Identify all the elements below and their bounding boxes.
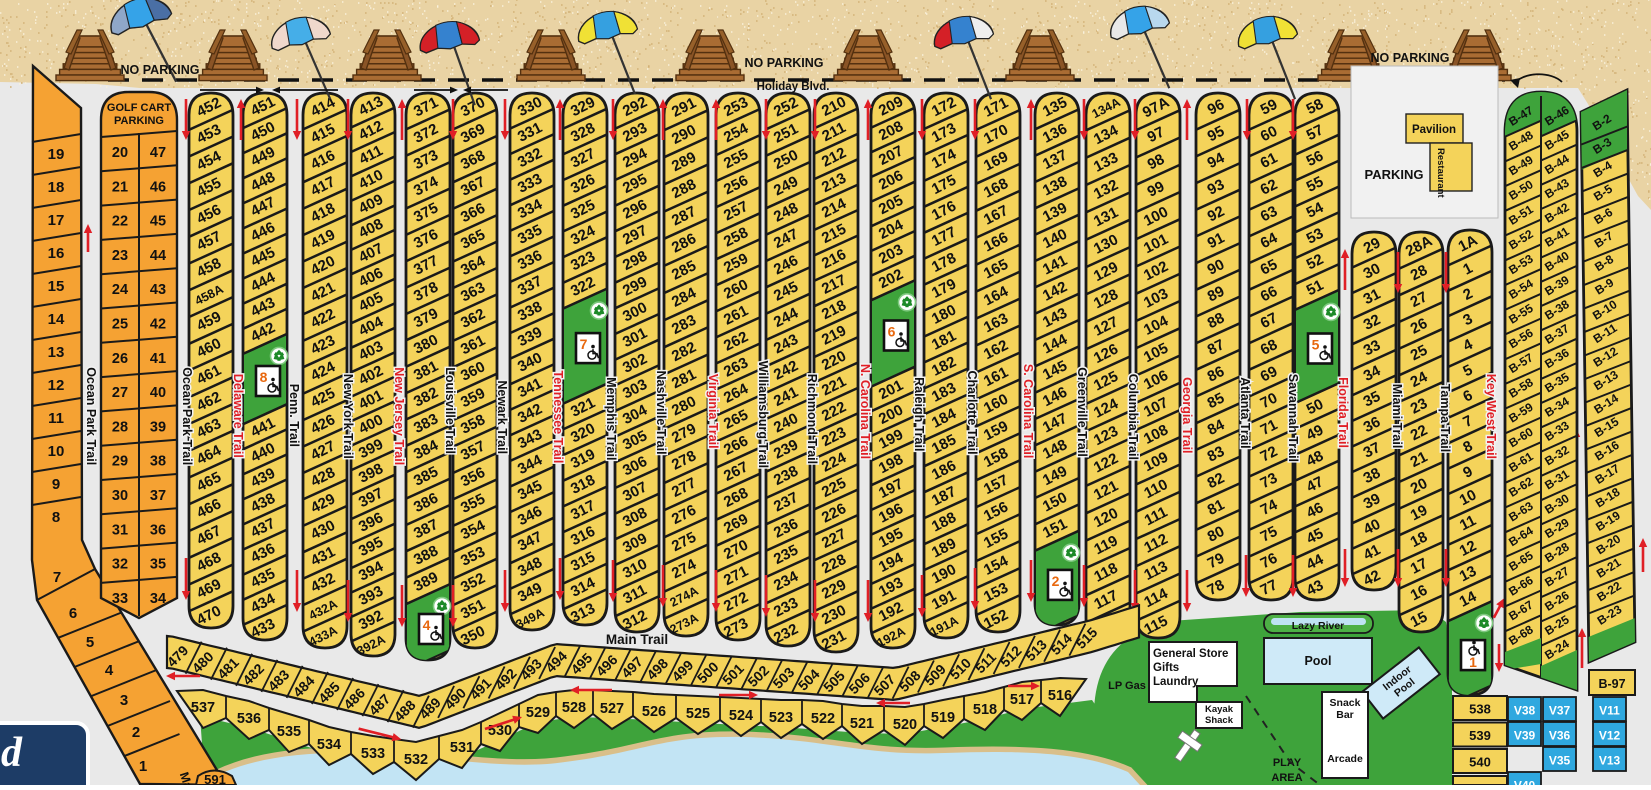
svg-text:12: 12	[48, 377, 65, 394]
svg-text:31: 31	[112, 522, 128, 538]
svg-text:LP Gas: LP Gas	[1108, 680, 1146, 692]
svg-text:Savannah Trail: Savannah Trail	[1286, 374, 1300, 462]
svg-text:37: 37	[150, 488, 166, 504]
svg-text:526: 526	[642, 704, 666, 720]
svg-text:PARKING: PARKING	[114, 115, 164, 127]
svg-text:Bar: Bar	[1336, 709, 1354, 721]
svg-text:S. Carolina Trail: S. Carolina Trail	[1021, 364, 1035, 458]
svg-text:39: 39	[150, 419, 166, 435]
svg-text:15: 15	[48, 278, 65, 295]
svg-text:Holiday Blvd.: Holiday Blvd.	[757, 81, 830, 93]
svg-text:3: 3	[120, 692, 128, 709]
svg-text:Ocean Park Trail: Ocean Park Trail	[180, 367, 194, 465]
svg-text:28: 28	[112, 419, 128, 435]
svg-text:8: 8	[260, 369, 268, 385]
svg-text:520: 520	[893, 717, 917, 733]
svg-text:4: 4	[105, 662, 114, 679]
svg-text:Florida Trail: Florida Trail	[1336, 377, 1350, 448]
svg-text:Laundry: Laundry	[1153, 676, 1199, 688]
svg-text:Georgia Trail: Georgia Trail	[1180, 377, 1194, 453]
svg-text:527: 527	[600, 701, 624, 717]
svg-text:V36: V36	[1549, 729, 1571, 743]
svg-text:532: 532	[404, 752, 428, 768]
svg-text:Memphis Trail: Memphis Trail	[604, 377, 618, 460]
svg-text:2: 2	[1052, 573, 1060, 589]
svg-text:Lazy River: Lazy River	[1292, 620, 1345, 632]
svg-text:NO PARKING: NO PARKING	[745, 56, 824, 70]
svg-text:5: 5	[86, 634, 94, 651]
svg-text:1: 1	[139, 758, 147, 775]
svg-text:523: 523	[769, 710, 793, 726]
svg-text:Nashville Trail: Nashville Trail	[654, 371, 668, 455]
svg-text:44: 44	[150, 248, 166, 264]
svg-text:535: 535	[277, 724, 301, 740]
svg-text:2: 2	[132, 724, 140, 741]
svg-text:533: 533	[361, 746, 385, 762]
svg-text:16: 16	[48, 245, 65, 262]
svg-text:7: 7	[580, 336, 588, 352]
svg-text:7: 7	[53, 569, 61, 586]
svg-text:GOLF CART: GOLF CART	[107, 102, 171, 114]
svg-text:Pavilion: Pavilion	[1412, 124, 1456, 136]
svg-text:V40: V40	[1514, 779, 1536, 786]
svg-text:General Store: General Store	[1153, 648, 1228, 660]
svg-text:27: 27	[112, 385, 128, 401]
svg-text:539: 539	[1469, 728, 1491, 743]
svg-text:B-97: B-97	[1598, 677, 1625, 691]
svg-text:Newark Trail: Newark Trail	[495, 380, 509, 454]
svg-text:Delaware Trail: Delaware Trail	[231, 374, 245, 458]
svg-text:6: 6	[888, 324, 896, 340]
svg-text:13: 13	[48, 344, 65, 361]
svg-text:Snack: Snack	[1330, 697, 1361, 709]
svg-text:Arcade: Arcade	[1327, 753, 1363, 765]
svg-text:New Jersey Trail: New Jersey Trail	[392, 367, 406, 465]
svg-text:540: 540	[1469, 755, 1491, 770]
svg-text:V11: V11	[1599, 704, 1620, 718]
svg-text:5: 5	[1312, 337, 1320, 353]
svg-text:Columbia Trail: Columbia Trail	[1126, 374, 1140, 460]
svg-text:Tennessee Trail: Tennessee Trail	[551, 371, 565, 464]
svg-text:Ocean Park Trail: Ocean Park Trail	[84, 367, 98, 465]
svg-text:21: 21	[112, 179, 128, 195]
svg-text:NO PARKING: NO PARKING	[121, 63, 200, 77]
svg-text:Williamsburg Trail: Williamsburg Trail	[756, 361, 770, 469]
svg-text:Restaurant: Restaurant	[1435, 148, 1446, 198]
svg-text:V38: V38	[1514, 704, 1536, 718]
svg-text:NO PARKING: NO PARKING	[1371, 51, 1450, 65]
svg-text:45: 45	[150, 214, 166, 230]
svg-text:Penn. Trail: Penn. Trail	[287, 384, 301, 447]
svg-text:534: 534	[317, 737, 341, 753]
svg-text:518: 518	[973, 702, 997, 718]
svg-text:V12: V12	[1599, 729, 1621, 743]
svg-text:46: 46	[150, 179, 166, 195]
svg-text:30: 30	[112, 488, 128, 504]
svg-text:35: 35	[150, 557, 166, 573]
svg-text:Greenville Trail: Greenville Trail	[1075, 367, 1089, 457]
svg-text:9: 9	[52, 476, 60, 493]
svg-text:43: 43	[150, 282, 166, 298]
svg-text:14: 14	[48, 311, 65, 328]
svg-text:34: 34	[150, 591, 166, 607]
svg-text:29: 29	[112, 454, 128, 470]
svg-text:V13: V13	[1599, 754, 1621, 768]
svg-text:10: 10	[48, 443, 65, 460]
svg-text:Richmond Trail: Richmond Trail	[805, 374, 819, 464]
svg-text:V39: V39	[1514, 729, 1536, 743]
svg-text:531: 531	[450, 740, 474, 756]
svg-text:8: 8	[52, 509, 60, 526]
svg-text:23: 23	[112, 248, 128, 264]
svg-text:New York Trail: New York Trail	[341, 374, 355, 459]
svg-text:Louisville Trail: Louisville Trail	[443, 367, 457, 454]
svg-text:PARKING: PARKING	[1365, 167, 1424, 182]
svg-text:522: 522	[811, 711, 835, 727]
svg-text:d: d	[1, 730, 23, 776]
svg-text:Main Trail: Main Trail	[606, 632, 668, 647]
svg-text:528: 528	[562, 700, 586, 716]
svg-text:4: 4	[423, 617, 431, 633]
svg-text:Key West Trail: Key West Trail	[1484, 374, 1498, 459]
svg-text:529: 529	[526, 705, 550, 721]
svg-text:Tampa Trail: Tampa Trail	[1438, 384, 1452, 453]
svg-text:36: 36	[150, 522, 166, 538]
svg-text:20: 20	[112, 145, 128, 161]
svg-text:1: 1	[1469, 654, 1477, 670]
svg-text:17: 17	[48, 212, 65, 229]
svg-text:24: 24	[112, 282, 128, 298]
svg-text:40: 40	[150, 385, 166, 401]
svg-text:19: 19	[48, 146, 65, 163]
svg-text:Atlanta Trail: Atlanta Trail	[1238, 377, 1252, 449]
svg-text:41: 41	[150, 351, 166, 367]
svg-text:524: 524	[729, 708, 753, 724]
svg-text:18: 18	[48, 179, 65, 196]
svg-text:Virginia Trail: Virginia Trail	[706, 374, 720, 449]
svg-text:11: 11	[48, 410, 64, 427]
svg-text:Shack: Shack	[1205, 715, 1234, 726]
svg-text:26: 26	[112, 351, 128, 367]
svg-text:516: 516	[1048, 688, 1072, 704]
svg-text:N. Carolina Trail: N. Carolina Trail	[858, 364, 872, 459]
svg-text:Gifts: Gifts	[1153, 662, 1179, 674]
svg-text:Charlotte Trail: Charlotte Trail	[965, 371, 979, 455]
svg-text:525: 525	[686, 706, 710, 722]
svg-text:AREA: AREA	[1271, 772, 1302, 784]
svg-text:Kayak: Kayak	[1205, 704, 1234, 715]
svg-text:V35: V35	[1549, 754, 1571, 768]
svg-text:521: 521	[850, 716, 874, 732]
svg-text:517: 517	[1010, 692, 1034, 708]
svg-text:519: 519	[931, 710, 955, 726]
svg-text:32: 32	[112, 557, 128, 573]
svg-text:591: 591	[204, 772, 226, 785]
svg-text:25: 25	[112, 317, 128, 333]
svg-text:Miami Trail: Miami Trail	[1390, 384, 1404, 449]
svg-text:38: 38	[150, 454, 166, 470]
svg-text:6: 6	[69, 605, 77, 622]
svg-text:Pool: Pool	[1304, 654, 1331, 668]
svg-text:22: 22	[112, 214, 128, 230]
svg-text:538: 538	[1469, 702, 1491, 717]
svg-text:536: 536	[237, 711, 261, 727]
svg-text:33: 33	[112, 591, 128, 607]
svg-text:42: 42	[150, 317, 166, 333]
svg-text:537: 537	[191, 700, 215, 716]
svg-text:V37: V37	[1549, 704, 1571, 718]
svg-text:47: 47	[150, 145, 166, 161]
svg-text:Raleigh Trail: Raleigh Trail	[912, 377, 926, 451]
